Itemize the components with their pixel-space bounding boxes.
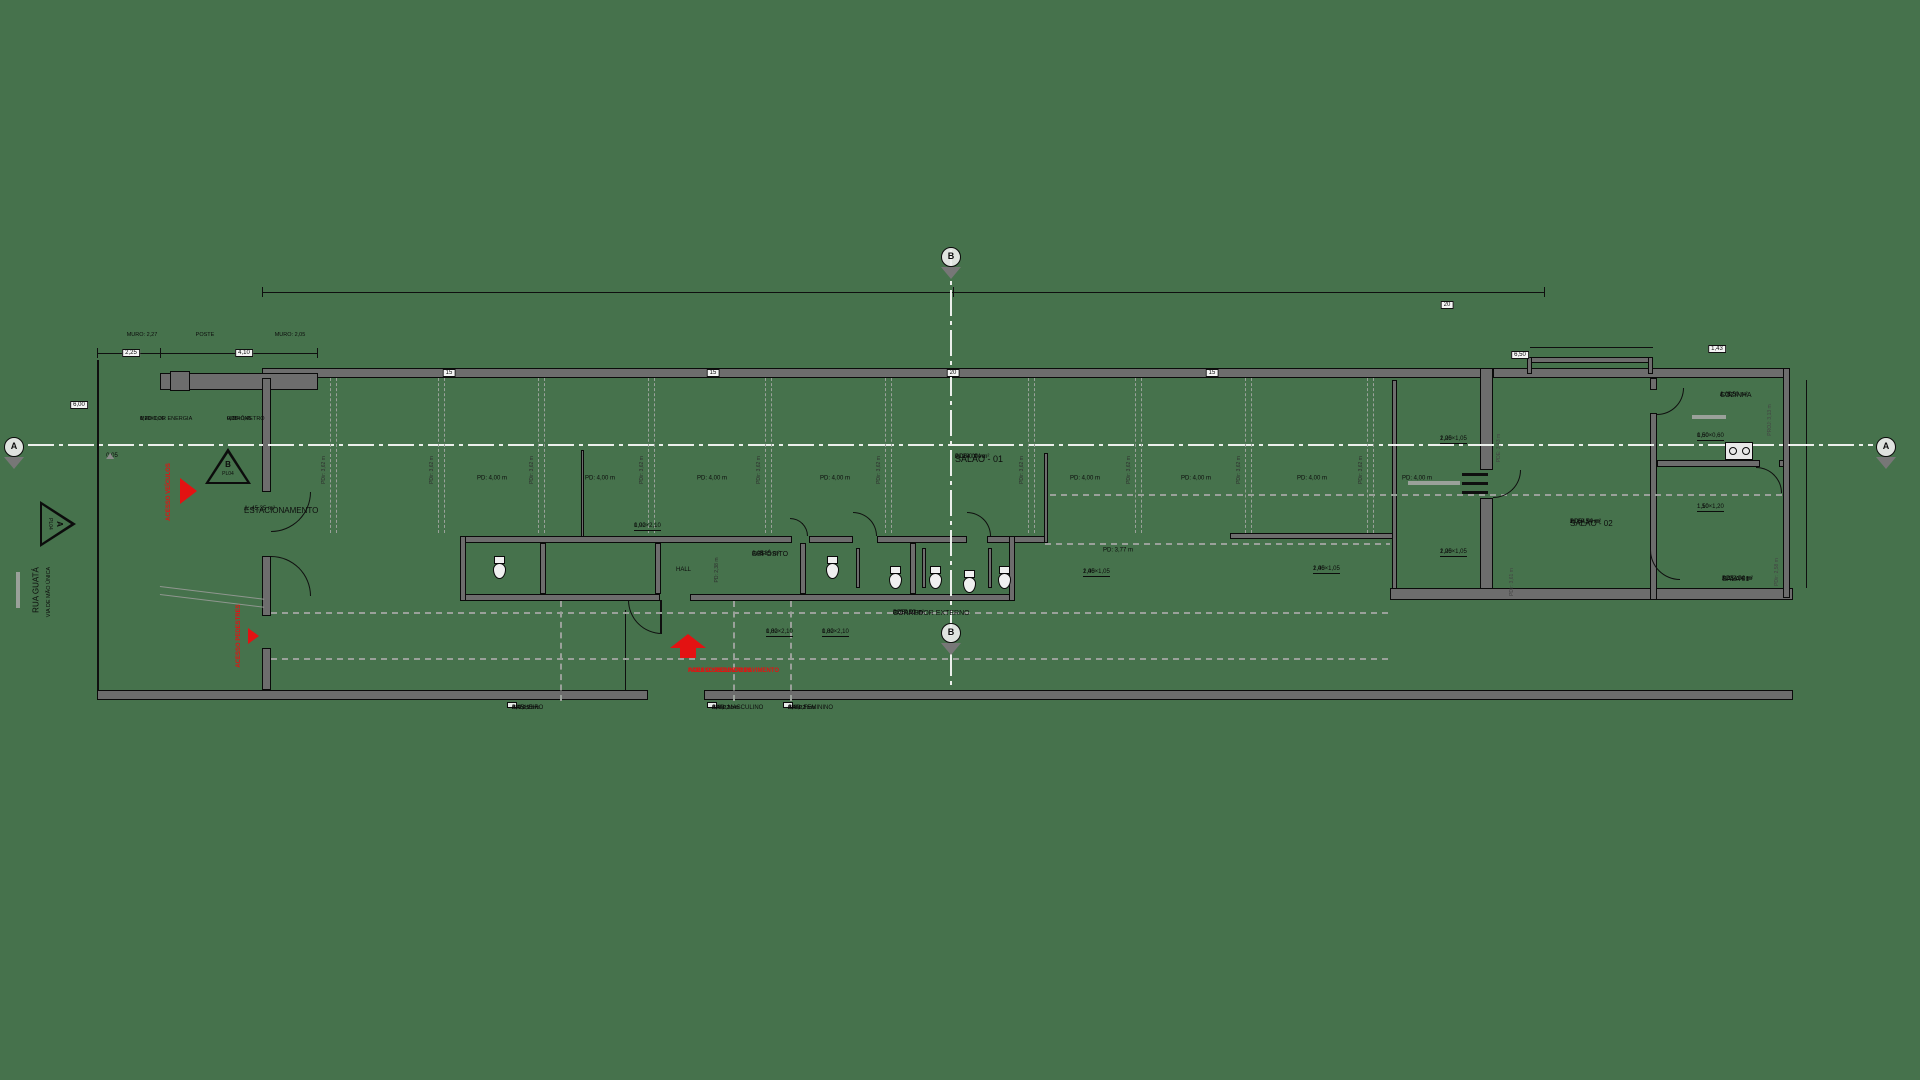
label-leader: [733, 601, 735, 701]
column-grid-line: [538, 378, 545, 533]
vlabel-pdir-258: PDir: 2,58 m: [1774, 558, 1780, 586]
vlabel-pd-238: PD: 2,38 m: [714, 557, 720, 582]
vlabel-via-mao-unica: VIA DE MÃO ÚNICA: [46, 567, 52, 617]
level-marker: 1,05: [1570, 519, 1582, 527]
toilet-part: [493, 563, 506, 579]
room-label-san-feminino-tag: SAN. FEMININOA: 4,02 m²PD: 2,31 m0,49: [783, 702, 793, 708]
detail-marker-B: BPL04: [205, 448, 251, 484]
opening-tag-line: 1,05: [1440, 549, 1452, 556]
dim-value: 6,00: [70, 401, 88, 409]
stall-partition: [856, 548, 860, 588]
dim-value: 15: [707, 369, 720, 377]
room-label-line: A: 45,35 m²: [244, 506, 275, 514]
section-marker-A: A: [1876, 437, 1896, 457]
floor-plan-canvas: ESTACIONAMENTOA: 45,35 m²SALÃO - 01A: 29…: [0, 0, 1920, 1080]
column-grid-line: [1367, 378, 1374, 533]
level-marker: 0,05: [106, 453, 118, 459]
section-marker-pointer: [4, 457, 24, 469]
vlabel-proj-313: PROJ: 3,13 m: [1767, 404, 1773, 435]
label-poste: POSTE: [196, 332, 215, 338]
outer-wall-left-upper: [262, 378, 271, 492]
door-arc-hall: [628, 600, 662, 634]
label-pd-377: PD: 3,77 m: [1103, 548, 1133, 555]
pd-label: PD: 4,00 m: [477, 476, 507, 483]
pd-label: PD: 4,00 m: [585, 476, 615, 483]
corridor-dash: [1045, 543, 1390, 545]
level-marker: 0,49: [712, 705, 724, 713]
room-label-san-masculino-tag: SAN. MASCULINOA: 4,02 m²PD: 2,31 m0,49: [707, 702, 717, 708]
detail-marker-part: A: [55, 501, 64, 547]
level-marker: 0,45: [512, 705, 524, 713]
column-pd-label: PDir: 3,62 m: [1358, 456, 1364, 484]
outer-wall-top-right: [1493, 368, 1790, 378]
dim-value: 1,43: [1708, 345, 1726, 353]
room-label-banheiro-tag: BANHEIROA: 2,15 m²PD: 2,25 m0,45: [507, 702, 517, 708]
toilet-icon: [888, 566, 903, 590]
sanitary-wall: [800, 543, 806, 594]
section-marker-pointer: [1876, 457, 1896, 469]
parapet: [1527, 357, 1532, 374]
step-bar: [1462, 482, 1488, 485]
column-pd-label: PDir: 3,62 m: [529, 456, 535, 484]
column-pd-label: PDir: 3,62 m: [1236, 456, 1242, 484]
opening-tag-line: 1,05: [1440, 436, 1452, 443]
pd-label: PD: 4,00 m: [1297, 476, 1327, 483]
level-marker: 0,49: [788, 705, 800, 713]
salao-bottom-wall: [460, 536, 792, 543]
stall-partition: [922, 548, 926, 588]
column-grid-line: [330, 378, 337, 533]
sanitary-wall: [910, 543, 916, 594]
label-leader: [790, 601, 792, 701]
section-marker-A: A: [4, 437, 24, 457]
site-wall-bottom: [97, 690, 648, 700]
column-pd-label: PDir: 3,62 m: [876, 456, 882, 484]
dim-tick: [953, 287, 954, 297]
entry-steps: [1462, 473, 1488, 500]
sanitary-bottom-wall: [690, 594, 1015, 601]
red-arrow-up-head: [670, 634, 706, 648]
red-arrow-right: [180, 478, 197, 504]
toilet-icon: [492, 556, 507, 580]
cozinha-sala-wall: [1657, 460, 1760, 467]
division-wall: [1480, 368, 1493, 470]
column-pd-label: PDir: 3,62 m: [756, 456, 762, 484]
label-muro-esq: MURO: 2,27: [127, 332, 158, 338]
ramp-line: [160, 586, 264, 600]
direction-arrow: [1692, 415, 1726, 419]
dim-value: 6,50: [1511, 351, 1529, 359]
dim-value: 4,10: [235, 349, 253, 357]
step-bar: [1462, 491, 1488, 494]
corridor-dash: [271, 658, 1390, 660]
level-marker: 0,05: [955, 454, 967, 462]
toilet-icon: [825, 556, 840, 580]
column-pd-label: PDir: 3,62 m: [321, 456, 327, 484]
toilet-part: [826, 563, 839, 579]
burner: [1729, 447, 1737, 455]
column-pd-label: PDir: 3,62 m: [1126, 456, 1132, 484]
pd-label: PD: 4,00 m: [1070, 476, 1100, 483]
pd-label: PD: 4,00 m: [820, 476, 850, 483]
toilet-part: [998, 573, 1011, 589]
salao-bottom-wall: [809, 536, 853, 543]
interior-line: [625, 610, 626, 690]
vlabel-pdir-361: PDir: 3,61 m: [1509, 568, 1515, 596]
gate-arc: [271, 556, 311, 596]
parapet: [1527, 357, 1653, 363]
vlabel-pde-343: PDE: 3,43 m: [1496, 434, 1502, 462]
red-text-line: PARA O SEGUNDO PAVIMENTO: [688, 668, 779, 676]
opening-tag-line: 1,02: [634, 523, 646, 530]
property-line: [97, 360, 99, 690]
site-wall-bottom: [704, 690, 1793, 700]
opening-tag-line: 1,02: [822, 629, 834, 636]
level-marker: 0,05: [752, 551, 764, 559]
detail-marker-A: APL04: [40, 501, 76, 547]
column-grid-line: [1135, 378, 1142, 533]
level-marker: 1,05: [1722, 576, 1734, 584]
label-muro-dir: MURO: 2,05: [275, 332, 306, 338]
pd-label: PD: 4,00 m: [697, 476, 727, 483]
dim-value: 15: [1206, 369, 1219, 377]
opening-tag-line: 1,05: [1313, 566, 1325, 573]
outer-wall-left-lower: [262, 648, 271, 690]
column-grid-line: [885, 378, 892, 533]
corridor-dash: [271, 612, 1390, 614]
dim-value: 20: [947, 369, 960, 377]
opening-tag-line: 1,05: [1083, 569, 1095, 576]
detail-marker-part: PL04: [47, 501, 53, 547]
stove-icon: [1725, 442, 1753, 460]
door-arc-wc: [853, 512, 877, 536]
dim-value: 15: [443, 369, 456, 377]
red-access-pedestrians-side-text: ACESSO PEDESTRES: [236, 604, 244, 667]
dim-value: 20: [1441, 301, 1454, 309]
pd-label: PD: 4,00 m: [1181, 476, 1211, 483]
room-label-line: HALL: [676, 567, 691, 575]
step-bar: [1462, 473, 1488, 476]
toilet-part: [963, 577, 976, 593]
section-marker-B: B: [941, 247, 961, 267]
sanitary-wall: [460, 536, 466, 601]
sanitary-wall: [540, 543, 546, 594]
label-leader: [560, 601, 562, 701]
red-arrow-right-small: [248, 628, 259, 644]
level-glyph: [106, 453, 114, 459]
column-grid-line: [438, 378, 445, 533]
dim-line: [1530, 347, 1653, 348]
dim-line: [1806, 380, 1807, 588]
detail-marker-part: B: [205, 460, 251, 469]
column-grid-line: [1245, 378, 1252, 533]
dim-tick: [1544, 287, 1545, 297]
section-marker-pointer: [941, 643, 961, 655]
opening-tag-line: 1,02: [766, 629, 778, 636]
dim-tick: [317, 348, 318, 358]
pd-label: PD: 4,00 m: [1402, 476, 1432, 483]
red-arrow-up-shaft: [680, 648, 696, 658]
poste-column: [170, 371, 190, 391]
toilet-icon: [997, 566, 1012, 590]
corridor-dash: [1050, 494, 1785, 496]
room-label-line: 0,05: [227, 416, 238, 423]
red-access-vehicles-text: ACESSO VEÍCULOS: [166, 463, 174, 521]
interior-wall: [581, 450, 584, 537]
interior-wall: [1230, 533, 1393, 539]
level-marker: 0,05: [893, 610, 905, 618]
column-pd-label: PDir: 3,62 m: [429, 456, 435, 484]
door-arc-cozinha: [1657, 388, 1684, 415]
door-arc: [790, 518, 808, 536]
vlabel-rua-guata: RUA GUATÁ: [32, 567, 41, 613]
interior-wall: [1044, 453, 1048, 543]
toilet-icon: [962, 570, 977, 594]
salao-bottom-wall: [987, 536, 1045, 543]
room-label-line: 0,70: [140, 416, 151, 423]
division-wall: [1480, 498, 1493, 600]
dim-tick: [262, 287, 263, 297]
column-pd-label: PDir: 3,62 m: [639, 456, 645, 484]
cozinha-wall: [1650, 378, 1657, 390]
door-arc: [1756, 467, 1782, 493]
opening-tag-line: 1,50: [1697, 433, 1709, 440]
dim-tick: [160, 348, 161, 358]
cozinha-wall: [1650, 413, 1657, 600]
right-bottom-wall: [1390, 588, 1793, 600]
section-marker-B: B: [941, 623, 961, 643]
parapet: [1648, 357, 1653, 374]
dim-value: 2,25: [122, 349, 140, 357]
sanitary-wall: [655, 543, 661, 594]
column-grid-line: [1028, 378, 1035, 533]
outer-wall-right: [1783, 368, 1790, 598]
column-grid-line: [648, 378, 655, 533]
interior-wall: [1392, 380, 1397, 595]
dim-tick: [97, 348, 98, 358]
detail-marker-part: PL04: [205, 471, 251, 477]
level-marker: 1,00: [1720, 392, 1732, 400]
stall-partition: [988, 548, 992, 588]
burner: [1742, 447, 1750, 455]
opening-tag-line: 1,10: [1697, 504, 1709, 511]
section-marker-pointer: [941, 267, 961, 279]
salao-bottom-wall: [877, 536, 967, 543]
column-grid-line: [765, 378, 772, 533]
toilet-part: [929, 573, 942, 589]
column-pd-label: PDir: 3,62 m: [1019, 456, 1025, 484]
dim-line: [262, 292, 1545, 293]
toilet-icon: [928, 566, 943, 590]
toilet-part: [889, 573, 902, 589]
street-direction-arrow: [16, 572, 20, 608]
door-arc-wc: [967, 512, 991, 536]
